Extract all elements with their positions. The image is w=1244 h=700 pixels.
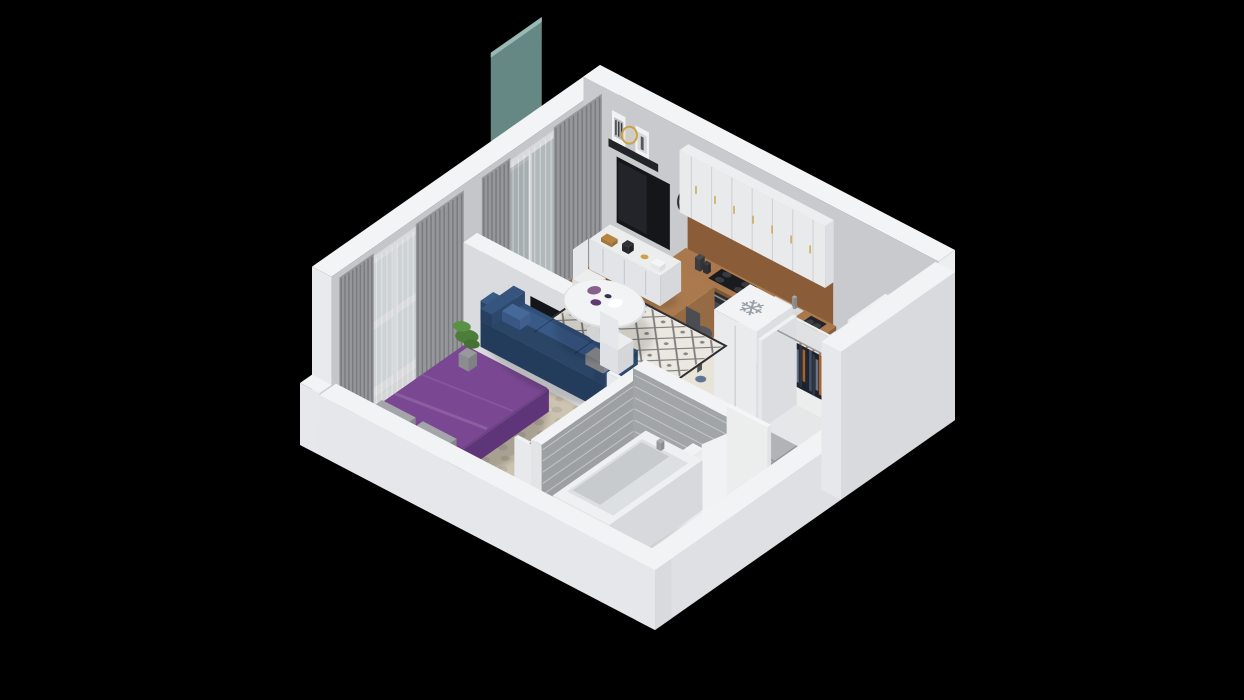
wall-sw-face-right xyxy=(655,558,672,630)
wardrobe-rack-2-clothes-item-7 xyxy=(803,349,806,382)
wall-se-tall-face-left xyxy=(821,342,841,500)
art-frame-2-figure xyxy=(641,136,644,150)
round-mirror-gold xyxy=(622,127,637,144)
wardrobe-rack-2-clothes-item-10 xyxy=(812,354,815,396)
wardrobe-rack-2-clothes-item-9 xyxy=(809,349,812,391)
wall-nw-corner-face-left xyxy=(300,383,320,455)
wardrobe-rack-2-end-1-face-left xyxy=(758,339,762,429)
sink-faucet-face-right xyxy=(795,297,797,310)
wardrobe-rack-2-clothes-item-8 xyxy=(806,354,809,387)
kitchen-upper-cabinets-face-right xyxy=(825,220,834,288)
wardrobe-rack-2-clothes-item-6 xyxy=(799,344,802,387)
wardrobe-rack-2-clothes-item-12 xyxy=(819,354,822,395)
floorplan-3d-render: ❄ xyxy=(0,0,1244,700)
wardrobe-rack-2-clothes-item-11 xyxy=(816,359,819,391)
floorplan-stage: ❄ xyxy=(0,0,1244,700)
scene-root: ❄ xyxy=(300,17,955,630)
